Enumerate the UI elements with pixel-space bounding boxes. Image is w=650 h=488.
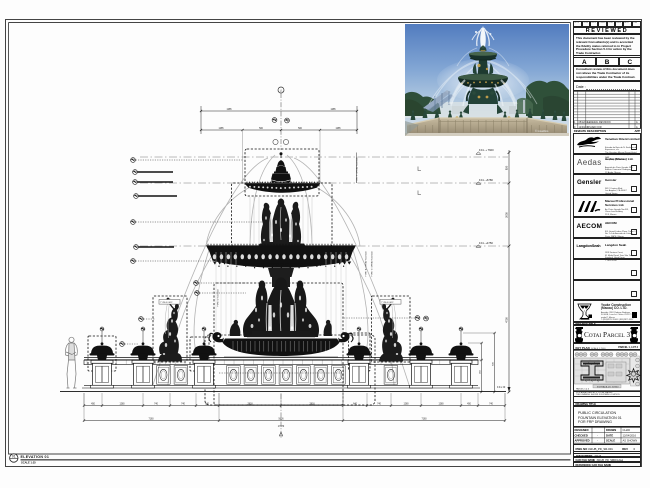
svg-text:830: 830 [492, 361, 494, 365]
svg-text:4750: 4750 [504, 317, 508, 323]
svg-text:1285: 1285 [330, 109, 336, 111]
svg-text:CHAD: CHAD [623, 428, 631, 432]
svg-text:TYPE 'F' SPRAY NOZZLE: TYPE 'F' SPRAY NOZZLE [356, 157, 359, 183]
svg-text:F.F.L +4750: F.F.L +4750 [479, 241, 493, 245]
svg-text:5636: 5636 [278, 418, 284, 420]
svg-text:ESTRADA DO ISTMO: ESTRADA DO ISTMO [597, 385, 619, 388]
svg-text:640: 640 [353, 403, 358, 405]
svg-text:-: - [597, 434, 598, 437]
svg-text:F.F.L +6780: F.F.L +6780 [479, 178, 493, 182]
svg-text:2818: 2818 [247, 403, 253, 405]
svg-text:DRAWN: DRAWN [606, 428, 616, 432]
svg-text:500: 500 [298, 128, 303, 130]
svg-text:450: 450 [91, 403, 96, 405]
svg-text:740: 740 [489, 403, 494, 405]
svg-text:DESIGNED: DESIGNED [575, 428, 589, 432]
svg-text:1285: 1285 [226, 109, 232, 111]
svg-text:2030: 2030 [504, 212, 508, 218]
svg-text:640: 640 [205, 403, 210, 405]
svg-text:GENERAL REVISION: GENERAL REVISION [587, 121, 611, 124]
svg-text:2818: 2818 [309, 403, 315, 405]
svg-text:740: 740 [377, 403, 382, 405]
svg-text:12/04/2016: 12/04/2016 [623, 433, 637, 437]
svg-text:1280: 1280 [119, 403, 125, 405]
svg-text:1280: 1280 [438, 403, 444, 405]
svg-text:TYPE 'D' NOZZLE: TYPE 'D' NOZZLE [218, 288, 220, 307]
svg-text:450: 450 [479, 369, 481, 373]
svg-text:TYPE 'B' SPRAY NOZZLE: TYPE 'B' SPRAY NOZZLE [365, 251, 368, 277]
svg-text:APPROVED: APPROVED [575, 439, 590, 443]
svg-text:1285: 1285 [218, 128, 224, 130]
svg-text:740: 740 [181, 403, 186, 405]
svg-text:500: 500 [259, 128, 264, 130]
svg-text:17370: 17370 [278, 426, 285, 428]
svg-text:1285: 1285 [335, 128, 341, 130]
svg-text:1280: 1280 [403, 403, 409, 405]
svg-text:F.F.L + 7600: F.F.L + 7600 [479, 148, 494, 152]
svg-text:7160: 7160 [148, 418, 154, 420]
svg-text:SCALE: SCALE [606, 439, 615, 443]
svg-text:F.F.L ±0: F.F.L ±0 [497, 386, 506, 389]
svg-text:740: 740 [154, 403, 159, 405]
svg-text:© travelfoto: © travelfoto [535, 129, 549, 133]
svg-text:AS SHOWN: AS SHOWN [623, 439, 638, 443]
svg-text:-: - [597, 440, 598, 443]
svg-text:7160: 7160 [421, 418, 427, 420]
svg-text:TYPE 'C' SPRAY NOZZLE: TYPE 'C' SPRAY NOZZLE [371, 251, 374, 277]
svg-text:TYPE-B GRP: TYPE-B GRP [160, 302, 173, 304]
svg-text:ELEVATION 01: ELEVATION 01 [21, 455, 50, 459]
svg-text:SCALE 1:25: SCALE 1:25 [21, 461, 36, 465]
svg-text:DATE: DATE [606, 433, 613, 437]
svg-text:TYPE-B GRP: TYPE-B GRP [381, 302, 394, 304]
svg-text:△: △ [280, 89, 283, 93]
svg-text:CHECKED: CHECKED [575, 433, 588, 437]
svg-text:01: 01 [12, 455, 16, 459]
svg-text:820: 820 [504, 165, 508, 170]
svg-text:450: 450 [467, 403, 472, 405]
